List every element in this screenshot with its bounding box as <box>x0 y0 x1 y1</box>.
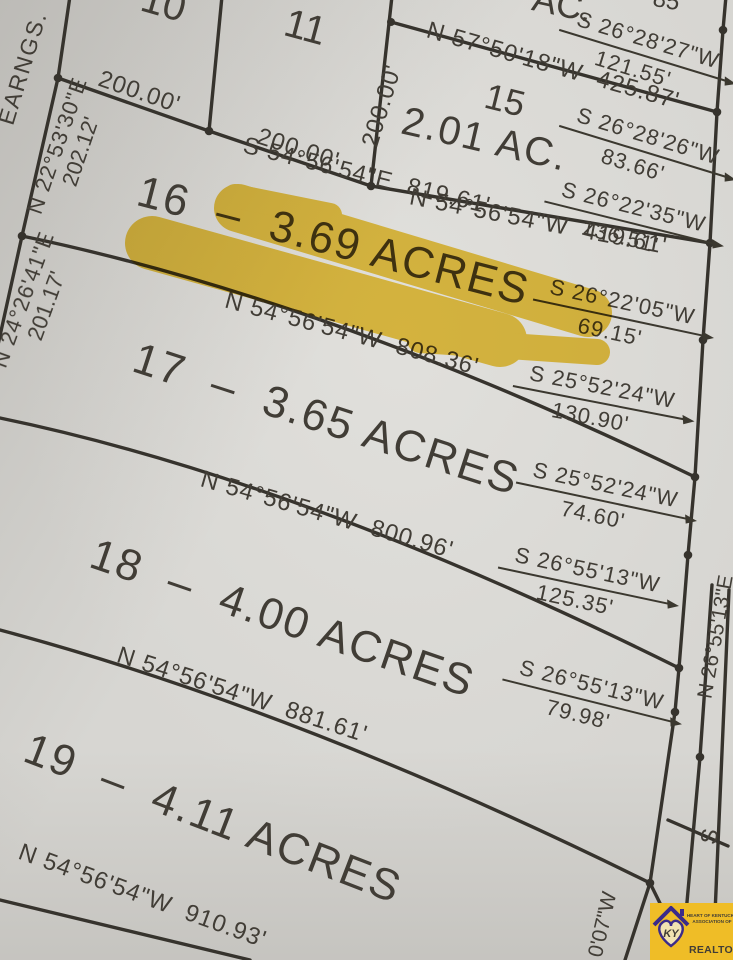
logo-org-line2: ASSOCIATION OF <box>692 919 731 924</box>
logo-region-text: KY <box>663 928 680 940</box>
plat-photo: EARNGS. 10 11 AC. 85 15 2.01 AC. 200.00'… <box>0 0 733 960</box>
logo-org-line1: HEART OF KENTUCKY <box>687 913 733 918</box>
logo-realtors-text: REALTORS® <box>689 944 733 956</box>
realtor-logo: KY HEART OF KENTUCKY ASSOCIATION OF REAL… <box>650 903 733 960</box>
plat-map-svg: EARNGS. 10 11 AC. 85 15 2.01 AC. 200.00'… <box>0 0 733 960</box>
